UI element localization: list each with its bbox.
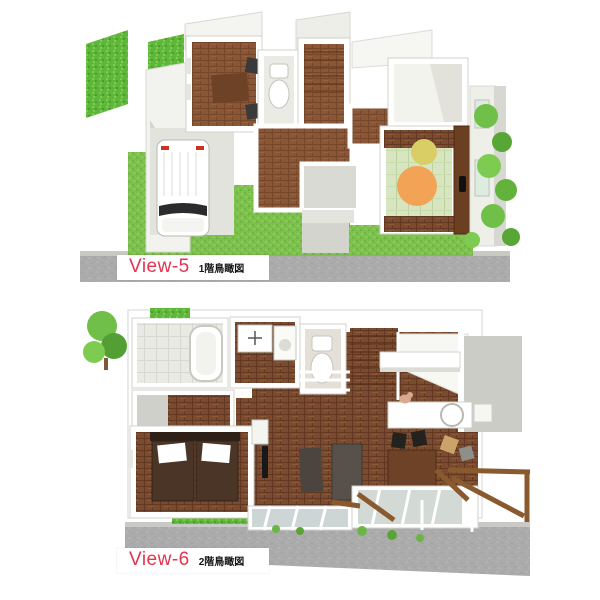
page: View-5 1階鳥瞰図 View-6 2階鳥瞰図: [0, 0, 600, 600]
v6-toilet-room: [300, 324, 346, 394]
v6-tv: [262, 446, 268, 478]
view6-caption: View-6 2階鳥瞰図: [117, 548, 269, 573]
v6-washroom: [230, 317, 300, 388]
view5-caption: View-5 1階鳥瞰図: [117, 255, 269, 280]
v6-house: [128, 308, 530, 542]
v6-bed: [196, 441, 238, 501]
v5-round-table: [397, 166, 437, 206]
v5-floor-cushion: [411, 139, 437, 165]
v5-car: [157, 140, 209, 236]
view5-label: View-5: [129, 257, 190, 277]
v5-study-room: [186, 36, 262, 132]
v5-tatami-room: [380, 126, 460, 234]
floorplan-renderings: [0, 0, 600, 600]
view5-rendering: [80, 12, 520, 282]
view6-label: View-6: [129, 550, 190, 570]
view6-rendering: [83, 308, 530, 576]
view6-sublabel: 2階鳥瞰図: [199, 553, 245, 568]
v5-stairs: [298, 38, 350, 132]
view5-sublabel: 1階鳥瞰図: [199, 260, 245, 275]
v6-bedroom: [128, 426, 254, 518]
v6-bathroom: [132, 308, 228, 388]
v5-white-room: [388, 58, 468, 128]
v6-bed: [152, 441, 194, 501]
v6-tree: [83, 311, 127, 370]
v5-toilet-room: [258, 50, 300, 132]
